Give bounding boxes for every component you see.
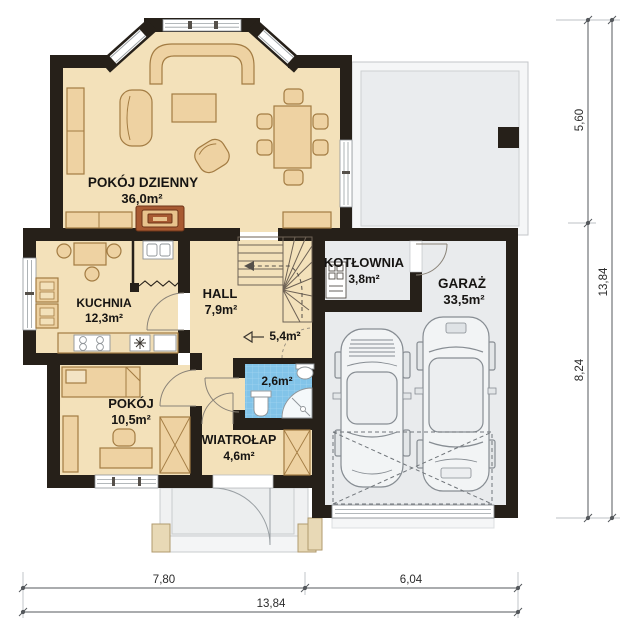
bathroom-area: 2,6m² <box>261 374 292 388</box>
hall-name: HALL <box>203 286 238 301</box>
dim-right-lower: 8,24 <box>574 358 586 381</box>
coffee-table <box>172 94 216 122</box>
vestibule-name: WIATROŁAP <box>202 433 277 447</box>
understairs-area: 5,4m² <box>269 329 300 343</box>
bedroom-window <box>95 475 158 488</box>
bedroom-area: 10,5m² <box>111 413 151 427</box>
dining-chair <box>284 89 303 104</box>
terrace <box>352 62 528 235</box>
fireplace <box>136 206 184 231</box>
living-window <box>340 140 352 207</box>
living-room-area: 36,0m² <box>121 191 163 206</box>
pillow <box>66 370 86 383</box>
dining-chair <box>257 140 272 155</box>
floor-plan-page: POKÓJ DZIENNY 36,0m² KUCHNIA 12,3m² HALL… <box>0 0 634 634</box>
entrance-opening <box>213 475 273 488</box>
kitchen-area: 12,3m² <box>85 311 123 325</box>
kitchen-window <box>23 258 36 330</box>
dining-table <box>274 106 311 168</box>
porch <box>152 488 322 552</box>
dining-chair <box>313 140 328 155</box>
wardrobe-hatched <box>160 417 190 473</box>
driveway-apron <box>332 518 494 528</box>
wardrobe <box>63 416 78 472</box>
hall-area: 7,9m² <box>205 303 238 317</box>
dining-chair <box>257 114 272 129</box>
dining-chair <box>284 170 303 185</box>
floor-plan-drawing: POKÓJ DZIENNY 36,0m² KUCHNIA 12,3m² HALL… <box>0 0 634 634</box>
car-left <box>333 329 411 487</box>
dim-right-upper: 5,60 <box>574 109 586 131</box>
dim-bottom-left: 7,80 <box>153 574 175 586</box>
kitchen-name: KUCHNIA <box>76 296 132 310</box>
garage-door <box>332 505 494 518</box>
living-room-name: POKÓJ DZIENNY <box>88 175 198 190</box>
desk <box>100 448 152 468</box>
boiler-door-opening <box>410 241 422 272</box>
dim-right-total: 13,84 <box>598 267 610 296</box>
boiler-name: KOTŁOWNIA <box>324 255 405 270</box>
dishwasher <box>154 335 176 351</box>
bedroom-name: POKÓJ <box>108 396 154 411</box>
garage-name: GARAŻ <box>438 276 486 291</box>
pantry-sink <box>143 241 173 259</box>
vestibule-wardrobe <box>284 430 310 475</box>
vestibule-area: 4,6m² <box>223 449 254 463</box>
kitchen-table <box>74 243 106 265</box>
garage-area: 33,5m² <box>443 292 485 307</box>
dining-chair <box>313 114 328 129</box>
armchair <box>120 90 152 146</box>
kitchen-chair <box>57 244 71 258</box>
sideboard <box>283 212 331 228</box>
kitchen-chair <box>85 267 99 281</box>
dim-bottom-total: 13,84 <box>257 598 286 610</box>
dim-bottom-right: 6,04 <box>400 574 423 586</box>
car-right <box>415 317 496 491</box>
kitchen-chair <box>107 244 121 258</box>
cooktop <box>74 335 110 351</box>
boiler-area: 3,8m² <box>348 272 379 286</box>
desk-chair <box>113 429 135 446</box>
